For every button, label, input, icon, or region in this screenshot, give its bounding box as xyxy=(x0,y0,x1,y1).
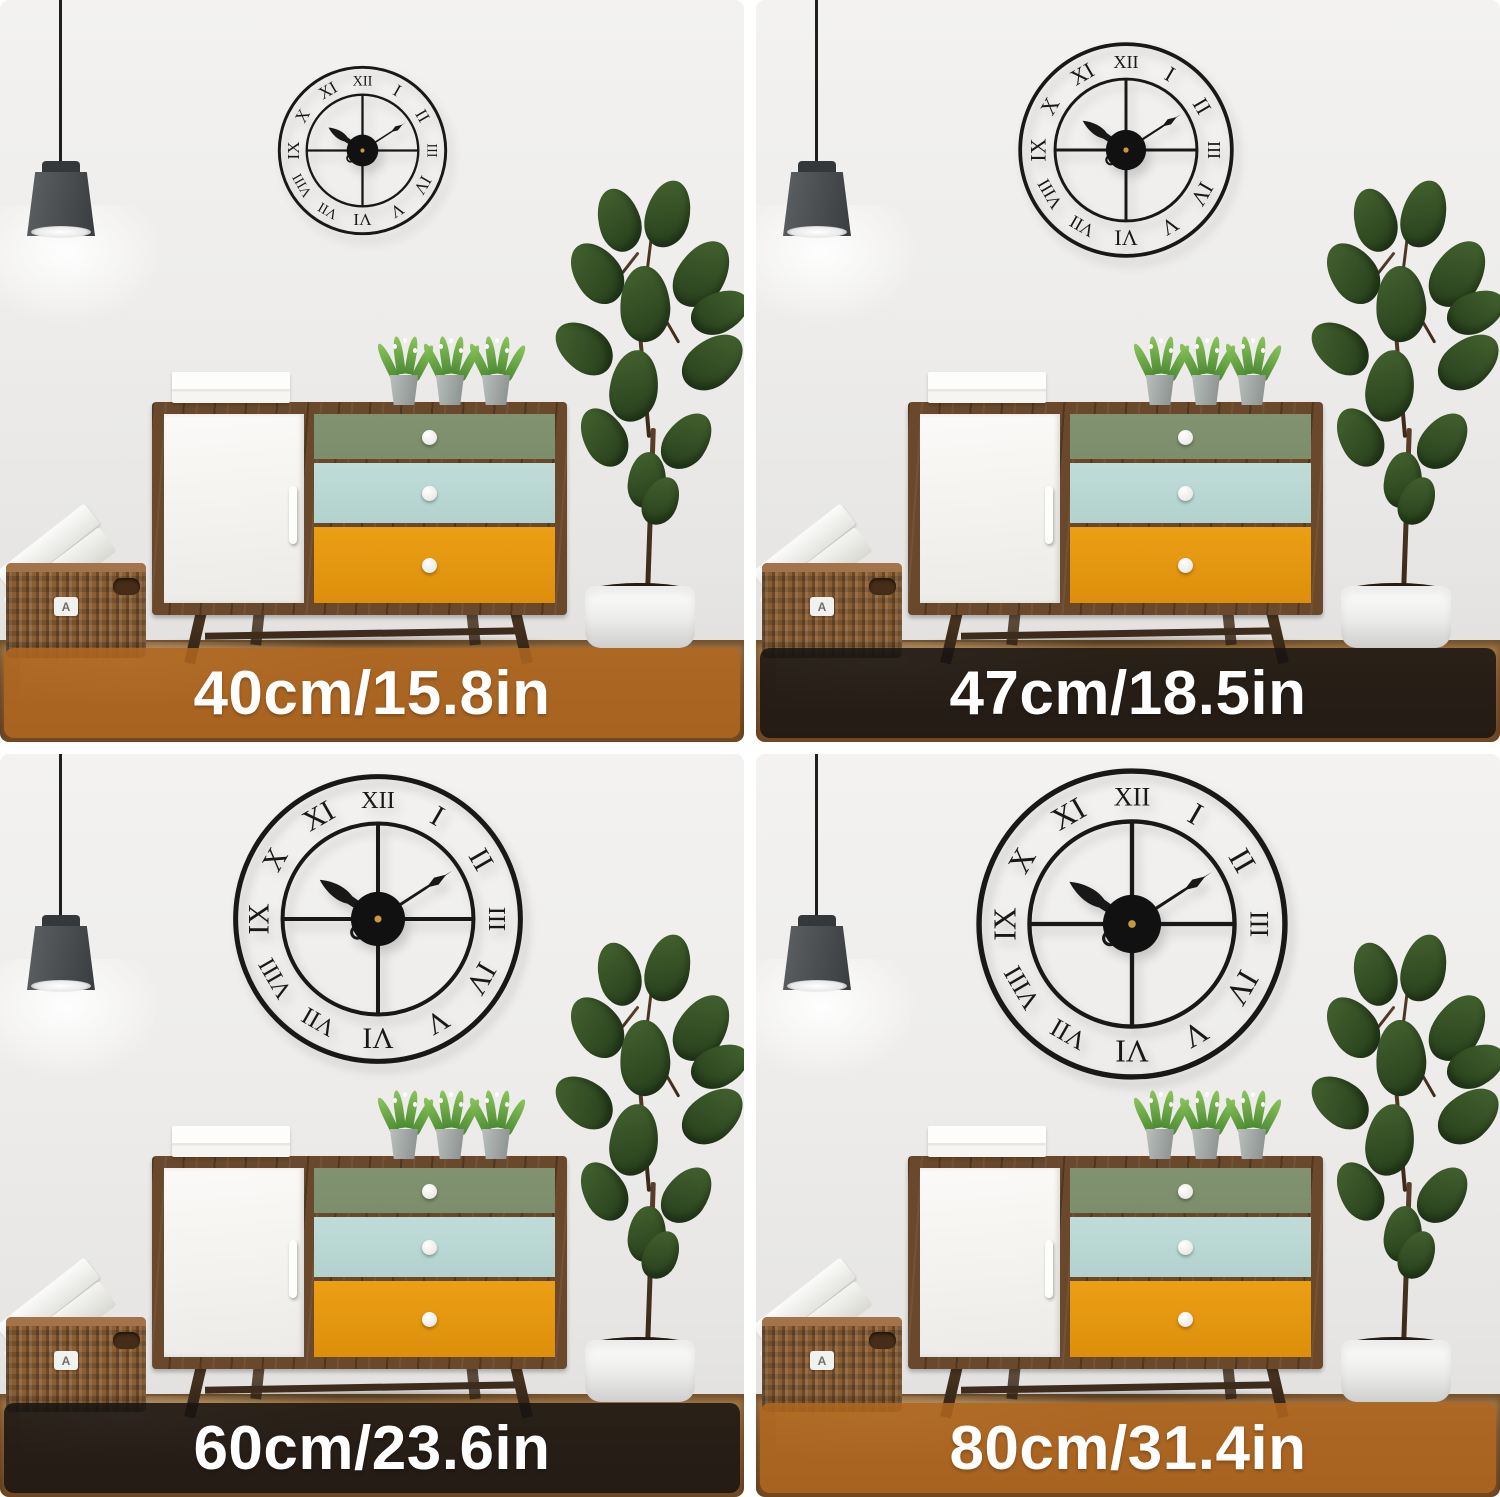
clock-numeral: II xyxy=(1222,842,1263,878)
door-handle xyxy=(289,1240,297,1298)
clock-numeral: I xyxy=(1161,61,1180,86)
lily-flower xyxy=(1241,344,1245,349)
basket-label-tag: A xyxy=(810,597,834,616)
clock-face: XIIIIIIIIIVVVIVIIVIIIIXXXI xyxy=(1016,40,1236,260)
clock-numeral: II xyxy=(462,843,500,876)
drawer-orange xyxy=(314,527,555,603)
clock-numeral: VI xyxy=(1115,1034,1149,1069)
clock-numeral: VI xyxy=(353,210,371,229)
sideboard-cabinet xyxy=(152,1156,567,1369)
drawer-blue xyxy=(314,1217,555,1277)
lily-flower xyxy=(1159,1092,1163,1097)
drawer-orange xyxy=(1070,1281,1311,1357)
small-plant-pot xyxy=(1236,1129,1268,1159)
clock-face: XIIIIIIIIIVVVIVIIVIIIIXXXI xyxy=(276,64,449,237)
wall-clock: XIIIIIIIIIVVVIVIIVIIIIXXXI xyxy=(973,765,1291,1083)
lily-flower xyxy=(1205,338,1209,343)
stacked-books xyxy=(172,372,290,403)
lily-flower xyxy=(1251,338,1255,343)
basket-label-tag: A xyxy=(810,1351,834,1370)
white-planter-pot xyxy=(585,1340,695,1402)
fig-leaf xyxy=(1362,1102,1417,1179)
lily-flower xyxy=(413,348,417,353)
basket-rim xyxy=(762,1317,902,1326)
clock-numeral: III xyxy=(1245,911,1274,937)
lily-flower xyxy=(393,344,397,349)
clock-numeral: XI xyxy=(1045,790,1092,837)
lamp-bulb-glow xyxy=(787,226,847,238)
door-handle xyxy=(289,486,297,544)
drawer-blue xyxy=(1070,463,1311,523)
lily-flower xyxy=(449,1092,453,1097)
clock-hub-pin xyxy=(374,915,381,922)
lamp-bulb-glow xyxy=(787,980,847,992)
basket-handle-slot xyxy=(113,1332,140,1349)
lily-flower xyxy=(495,338,499,343)
fig-leaf xyxy=(545,312,623,385)
fig-leaf xyxy=(1395,930,1452,1006)
fig-leaf xyxy=(606,348,661,425)
lily-flower xyxy=(1251,1092,1255,1097)
lily-flower xyxy=(1195,344,1199,349)
clock-numeral: XII xyxy=(1113,52,1138,72)
lamp-cord xyxy=(59,0,62,168)
basket-label: A xyxy=(62,600,71,614)
panel-40cm: XIIIIIIIIIVVVIVIIVIIIIXXXI A xyxy=(0,0,744,742)
clock-numeral: II xyxy=(1188,93,1217,118)
lily-flower xyxy=(1241,1098,1245,1103)
clock-numeral: I xyxy=(389,80,404,99)
lily-flower xyxy=(1169,1102,1173,1107)
small-plant-pot xyxy=(434,375,466,405)
basket-rim xyxy=(762,563,902,572)
clock-numeral: VI xyxy=(1114,226,1137,251)
clock-hub-pin xyxy=(360,148,364,152)
small-plant-pot xyxy=(388,1129,420,1159)
cabinet-door xyxy=(164,414,304,603)
fig-leaf xyxy=(545,1066,623,1139)
lily-flower xyxy=(403,1092,407,1097)
sideboard-cabinet xyxy=(908,1156,1323,1369)
lily-flower xyxy=(1261,1102,1265,1107)
drawer-green xyxy=(1070,1168,1311,1213)
size-comparison-grid: XIIIIIIIIIVVVIVIIVIIIIXXXI A xyxy=(0,0,1500,1497)
wall-clock: XIIIIIIIIIVVVIVIIVIIIIXXXI xyxy=(276,64,449,237)
clock-numeral: IX xyxy=(987,907,1022,941)
clock-numeral: IX xyxy=(283,140,302,159)
door-handle xyxy=(1045,486,1053,544)
fig-leaf xyxy=(1301,1066,1379,1139)
size-label-bar: 40cm/15.8in xyxy=(4,648,740,738)
small-plant-pot xyxy=(388,375,420,405)
lamp-bulb-glow xyxy=(31,980,91,992)
panel-47cm: XIIIIIIIIIVVVIVIIVIIIIXXXI A xyxy=(756,0,1500,742)
clock-numeral: III xyxy=(483,907,510,931)
clock-numeral: VII xyxy=(297,1001,340,1041)
lily-flower xyxy=(485,1098,489,1103)
size-label: 80cm/31.4in xyxy=(949,1413,1306,1484)
clock-numeral: VII xyxy=(1045,1012,1091,1055)
fig-leaf xyxy=(617,1018,672,1097)
clock-numeral: V xyxy=(386,199,407,222)
lily-flower xyxy=(413,1102,417,1107)
basket-handle-slot xyxy=(869,1332,896,1349)
basket-label: A xyxy=(818,1354,827,1368)
wall-clock: XIIIIIIIIIVVVIVIIVIIIIXXXI xyxy=(1016,40,1236,260)
basket-label: A xyxy=(818,600,827,614)
clock-numeral: II xyxy=(411,106,433,126)
lily-flower xyxy=(439,1098,443,1103)
lily-flower xyxy=(1215,1102,1219,1107)
small-plant-pot xyxy=(1144,375,1176,405)
clock-numeral: VII xyxy=(315,198,340,222)
fig-leaf xyxy=(1362,348,1417,425)
basket-label-tag: A xyxy=(54,1351,78,1370)
fig-leaf xyxy=(639,176,696,252)
clock-numeral: X xyxy=(1001,842,1043,879)
clock-face: XIIIIIIIIIVVVIVIIVIIIIXXXI xyxy=(973,765,1291,1083)
lily-flower xyxy=(459,348,463,353)
clock-numeral: VII xyxy=(1066,211,1098,241)
clock-face: XIIIIIIIIIVVVIVIIVIIIIXXXI xyxy=(230,771,526,1067)
basket-label-tag: A xyxy=(54,597,78,616)
panel-80cm: XIIIIIIIIIVVVIVIIVIIIIXXXI A xyxy=(756,754,1500,1497)
cabinet-door xyxy=(164,1168,304,1357)
cabinet-door xyxy=(920,414,1060,603)
drawer-blue xyxy=(1070,1217,1311,1277)
clock-numeral: IV xyxy=(459,957,503,1001)
stacked-books xyxy=(928,1126,1046,1157)
basket-handle-slot xyxy=(869,578,896,595)
stacked-books xyxy=(928,372,1046,403)
lily-flower xyxy=(485,344,489,349)
fig-leaf xyxy=(617,264,672,343)
basket-rim xyxy=(6,563,146,572)
lily-flower xyxy=(459,1102,463,1107)
sideboard-cabinet xyxy=(908,402,1323,615)
clock-numeral: XI xyxy=(315,77,341,103)
size-label-bar: 80cm/31.4in xyxy=(760,1403,1496,1493)
small-plant-pot xyxy=(1190,375,1222,405)
drawer-orange xyxy=(1070,527,1311,603)
clock-hub-pin xyxy=(1128,920,1136,928)
basket-rim xyxy=(6,1317,146,1326)
drawer-green xyxy=(314,1168,555,1213)
small-plant-pot xyxy=(1190,1129,1222,1159)
clock-numeral: XII xyxy=(1114,782,1150,811)
lamp-bulb-glow xyxy=(31,226,91,238)
clock-numeral: I xyxy=(1182,796,1209,832)
small-plant-pot xyxy=(1144,1129,1176,1159)
cabinet-door xyxy=(920,1168,1060,1357)
small-plant-pot xyxy=(480,375,512,405)
clock-numeral: XII xyxy=(361,787,395,814)
clock-numeral: V xyxy=(419,1002,454,1041)
lamp-cord xyxy=(815,0,818,168)
clock-numeral: III xyxy=(423,143,439,158)
lily-flower xyxy=(505,348,509,353)
fig-leaf xyxy=(1373,264,1428,343)
door-handle xyxy=(1045,1240,1053,1298)
clock-numeral: V xyxy=(1177,1013,1214,1055)
drawer-orange xyxy=(314,1281,555,1357)
clock-numeral: III xyxy=(1204,141,1224,159)
lily-flower xyxy=(403,338,407,343)
size-label-bar: 60cm/23.6in xyxy=(4,1403,740,1493)
clock-numeral: XI xyxy=(297,795,340,838)
fig-leaf xyxy=(1373,1018,1428,1097)
size-label: 60cm/23.6in xyxy=(193,1413,550,1484)
clock-numeral: IX xyxy=(244,903,276,934)
panel-60cm: XIIIIIIIIIVVVIVIIVIIIIXXXI A xyxy=(0,754,744,1497)
small-plant-pot xyxy=(434,1129,466,1159)
lily-flower xyxy=(1159,338,1163,343)
fig-leaf xyxy=(639,930,696,1006)
clock-numeral: IV xyxy=(1219,964,1266,1011)
size-label-bar: 47cm/18.5in xyxy=(760,648,1496,738)
size-label: 40cm/15.8in xyxy=(193,658,550,729)
white-planter-pot xyxy=(1341,1340,1451,1402)
lamp-cord xyxy=(815,754,818,922)
wall-clock: XIIIIIIIIIVVVIVIIVIIIIXXXI xyxy=(230,771,526,1067)
lily-flower xyxy=(1215,348,1219,353)
lily-flower xyxy=(1149,1098,1153,1103)
stacked-books xyxy=(172,1126,290,1157)
drawer-green xyxy=(314,414,555,459)
lily-flower xyxy=(495,1092,499,1097)
clock-numeral: VI xyxy=(362,1021,393,1053)
basket-label: A xyxy=(62,1354,71,1368)
sideboard-cabinet xyxy=(152,402,567,615)
fig-leaf xyxy=(1301,312,1379,385)
lily-flower xyxy=(505,1102,509,1107)
basket-handle-slot xyxy=(113,578,140,595)
clock-numeral: X xyxy=(291,105,314,126)
clock-numeral: XII xyxy=(352,73,372,89)
clock-hub-pin xyxy=(1123,147,1128,152)
clock-numeral: X xyxy=(256,843,294,878)
clock-numeral: I xyxy=(425,800,450,833)
lily-flower xyxy=(1195,1098,1199,1103)
white-planter-pot xyxy=(1341,586,1451,648)
small-plant-pot xyxy=(1236,375,1268,405)
clock-numeral: IX xyxy=(1026,138,1051,161)
lily-flower xyxy=(449,338,453,343)
small-plant-pot xyxy=(480,1129,512,1159)
white-planter-pot xyxy=(585,586,695,648)
lily-flower xyxy=(439,344,443,349)
lily-flower xyxy=(1149,344,1153,349)
lily-flower xyxy=(393,1098,397,1103)
lily-flower xyxy=(1261,348,1265,353)
drawer-green xyxy=(1070,414,1311,459)
drawer-blue xyxy=(314,463,555,523)
clock-numeral: X xyxy=(1035,93,1065,119)
fig-leaf xyxy=(1395,176,1452,252)
lily-flower xyxy=(1169,348,1173,353)
size-label: 47cm/18.5in xyxy=(949,658,1306,729)
clock-numeral: V xyxy=(1157,211,1183,241)
lamp-cord xyxy=(59,754,62,922)
fig-leaf xyxy=(606,1102,661,1179)
lily-flower xyxy=(1205,1092,1209,1097)
